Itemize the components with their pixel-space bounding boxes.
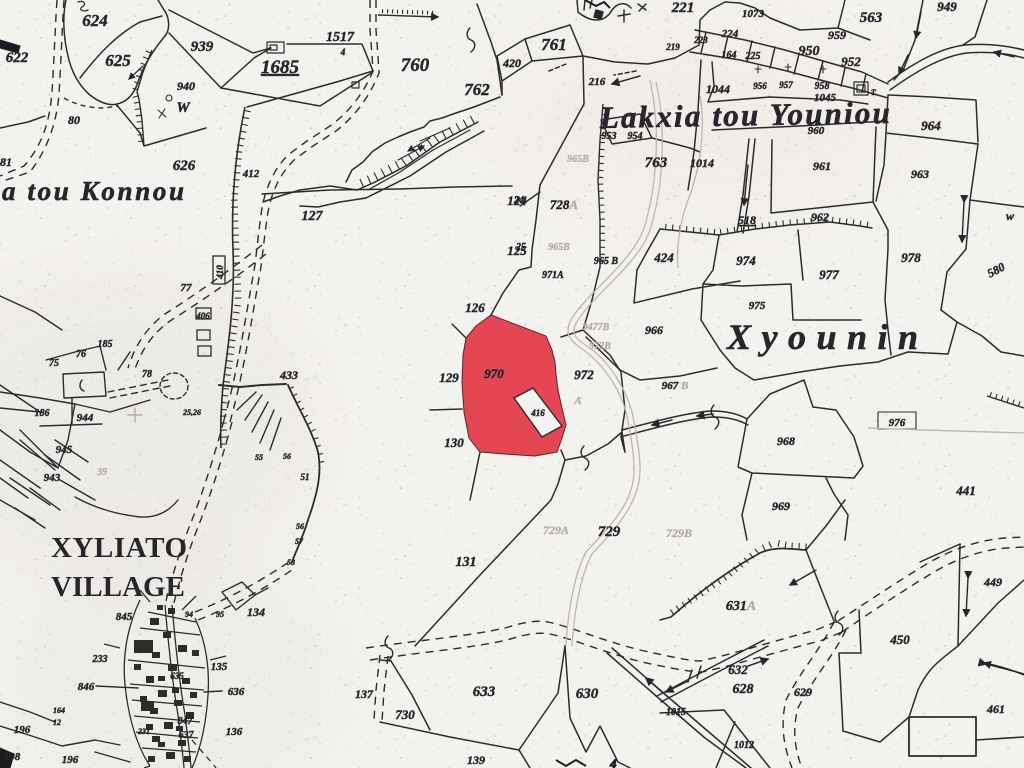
svg-text:1073: 1073 bbox=[742, 8, 765, 20]
svg-text:625: 625 bbox=[105, 51, 131, 70]
svg-text:622: 622 bbox=[6, 50, 29, 66]
svg-text:164: 164 bbox=[53, 706, 65, 715]
svg-text:965 B: 965 B bbox=[594, 256, 619, 267]
svg-text:728A: 728A bbox=[550, 197, 579, 212]
svg-text:964: 964 bbox=[921, 118, 941, 133]
svg-text:77: 77 bbox=[181, 282, 193, 294]
svg-text:127: 127 bbox=[302, 209, 324, 224]
svg-text:w: w bbox=[1006, 209, 1015, 223]
svg-text:a tou Konnou: a tou Konnou bbox=[2, 176, 184, 206]
svg-text:223: 223 bbox=[693, 35, 708, 45]
svg-text:944: 944 bbox=[77, 412, 94, 424]
svg-text:956: 956 bbox=[753, 81, 767, 91]
svg-text:224: 224 bbox=[721, 28, 739, 40]
svg-text:449: 449 bbox=[983, 575, 1002, 589]
svg-text:761: 761 bbox=[541, 35, 567, 54]
svg-text:406: 406 bbox=[195, 311, 210, 321]
svg-text:58: 58 bbox=[287, 558, 295, 567]
svg-text:134: 134 bbox=[247, 605, 265, 619]
svg-text:978: 978 bbox=[901, 250, 921, 265]
svg-text:636: 636 bbox=[228, 686, 245, 698]
svg-text:221: 221 bbox=[671, 0, 695, 16]
svg-text:971A: 971A bbox=[542, 270, 564, 281]
svg-text:410: 410 bbox=[215, 265, 225, 280]
svg-text:424: 424 bbox=[653, 250, 674, 265]
svg-text:968: 968 bbox=[777, 434, 795, 448]
svg-text:129: 129 bbox=[439, 370, 459, 385]
svg-text:939: 939 bbox=[191, 39, 214, 55]
svg-text:137: 137 bbox=[355, 687, 374, 701]
svg-text:461: 461 bbox=[986, 702, 1005, 716]
svg-text:730: 730 bbox=[395, 707, 415, 722]
svg-text:25,26: 25,26 bbox=[182, 408, 201, 417]
svg-text:974: 974 bbox=[736, 253, 756, 268]
svg-text:196: 196 bbox=[62, 754, 79, 766]
svg-text:977: 977 bbox=[819, 267, 839, 282]
svg-text:960: 960 bbox=[808, 125, 825, 137]
svg-text:729: 729 bbox=[598, 524, 621, 540]
svg-text:76: 76 bbox=[76, 349, 86, 360]
svg-text:1012: 1012 bbox=[734, 740, 754, 751]
svg-text:4: 4 bbox=[340, 47, 346, 57]
svg-text:185: 185 bbox=[98, 339, 113, 350]
svg-text:1685: 1685 bbox=[261, 57, 300, 78]
svg-text:953: 953 bbox=[602, 131, 617, 142]
svg-text:VILLAGE: VILLAGE bbox=[51, 571, 185, 603]
svg-text:965B: 965B bbox=[567, 154, 589, 165]
svg-text:563: 563 bbox=[860, 10, 883, 26]
svg-text:441: 441 bbox=[955, 483, 976, 498]
svg-text:966: 966 bbox=[645, 323, 663, 337]
svg-text:233: 233 bbox=[92, 654, 108, 665]
svg-text:630: 630 bbox=[576, 686, 599, 702]
svg-text:XYLIATO: XYLIATO bbox=[51, 532, 187, 564]
svg-text:51: 51 bbox=[301, 472, 310, 482]
svg-text:416: 416 bbox=[530, 408, 545, 418]
svg-text:225: 225 bbox=[745, 51, 761, 62]
svg-text:W: W bbox=[176, 100, 191, 116]
svg-text:131: 131 bbox=[456, 555, 477, 570]
svg-text:635: 635 bbox=[170, 671, 184, 681]
svg-text:845: 845 bbox=[116, 611, 133, 623]
svg-text:624: 624 bbox=[82, 11, 108, 30]
svg-text:967 B: 967 B bbox=[662, 380, 689, 392]
svg-text:4: 4 bbox=[609, 756, 617, 768]
svg-text:9477B: 9477B bbox=[583, 322, 610, 333]
svg-text:847: 847 bbox=[178, 716, 194, 727]
svg-text:518: 518 bbox=[738, 213, 756, 227]
svg-text:729B: 729B bbox=[666, 526, 692, 540]
svg-text:433: 433 bbox=[279, 368, 298, 382]
svg-text:130: 130 bbox=[444, 435, 464, 450]
svg-text:763: 763 bbox=[645, 155, 668, 171]
svg-text:729A: 729A bbox=[543, 523, 569, 537]
svg-text:78: 78 bbox=[142, 369, 152, 380]
svg-text:633: 633 bbox=[473, 684, 496, 700]
svg-text:628: 628 bbox=[733, 682, 754, 697]
svg-text:136: 136 bbox=[226, 726, 243, 738]
svg-text:957: 957 bbox=[779, 80, 793, 90]
svg-text:1015: 1015 bbox=[666, 707, 686, 718]
svg-text:95: 95 bbox=[216, 610, 224, 619]
svg-text:75: 75 bbox=[49, 358, 59, 369]
svg-text:940: 940 bbox=[177, 79, 195, 93]
svg-text:231: 231 bbox=[137, 727, 150, 736]
svg-text:1044: 1044 bbox=[706, 82, 730, 96]
svg-text:55: 55 bbox=[255, 453, 263, 462]
svg-text:56: 56 bbox=[283, 452, 291, 461]
svg-text:T.: T. bbox=[871, 88, 877, 97]
svg-text:164: 164 bbox=[722, 50, 737, 61]
svg-text:846: 846 bbox=[78, 681, 95, 693]
svg-text:965B: 965B bbox=[548, 242, 570, 253]
svg-text:762: 762 bbox=[464, 80, 490, 99]
svg-text:962: 962 bbox=[811, 210, 829, 224]
svg-text:943: 943 bbox=[44, 472, 61, 484]
svg-text:94: 94 bbox=[185, 610, 193, 619]
svg-text:198: 198 bbox=[4, 751, 21, 763]
svg-text:126: 126 bbox=[465, 300, 485, 315]
svg-text:24: 24 bbox=[513, 195, 524, 206]
svg-text:959: 959 bbox=[828, 28, 846, 42]
svg-text:961: 961 bbox=[813, 159, 831, 173]
svg-text:972B: 972B bbox=[589, 341, 611, 352]
svg-text:216: 216 bbox=[588, 76, 606, 88]
svg-text:1517: 1517 bbox=[326, 30, 355, 45]
svg-text:1014: 1014 bbox=[690, 156, 714, 170]
svg-text:952: 952 bbox=[841, 54, 861, 69]
svg-text:954: 954 bbox=[628, 131, 643, 142]
svg-text:450: 450 bbox=[889, 632, 910, 647]
svg-text:12: 12 bbox=[53, 718, 61, 727]
svg-text:631A: 631A bbox=[726, 599, 756, 614]
svg-text:632: 632 bbox=[728, 662, 748, 677]
svg-text:969: 969 bbox=[772, 499, 790, 513]
svg-text:Lakxia tou Youniou: Lakxia tou Youniou bbox=[599, 95, 891, 135]
svg-text:949: 949 bbox=[937, 0, 957, 14]
svg-text:970: 970 bbox=[484, 366, 504, 381]
svg-text:139: 139 bbox=[467, 753, 485, 767]
svg-text:976: 976 bbox=[889, 417, 906, 429]
svg-text:1045: 1045 bbox=[814, 92, 837, 104]
svg-text:186: 186 bbox=[35, 408, 50, 419]
svg-text:412: 412 bbox=[242, 168, 260, 180]
svg-text:80: 80 bbox=[68, 113, 80, 127]
svg-text:958: 958 bbox=[815, 81, 830, 92]
svg-text:637: 637 bbox=[179, 730, 195, 741]
svg-text:626: 626 bbox=[173, 158, 196, 174]
svg-text:56: 56 bbox=[296, 522, 304, 531]
svg-text:25: 25 bbox=[515, 242, 526, 253]
svg-text:629: 629 bbox=[794, 685, 812, 699]
svg-text:760: 760 bbox=[401, 55, 430, 76]
svg-text:420: 420 bbox=[502, 56, 521, 70]
svg-text:950: 950 bbox=[799, 44, 820, 59]
svg-text:975: 975 bbox=[749, 300, 766, 312]
svg-text:A: A bbox=[573, 395, 581, 407]
svg-text:963: 963 bbox=[911, 167, 929, 181]
svg-text:135: 135 bbox=[211, 661, 228, 673]
svg-text:972: 972 bbox=[574, 367, 594, 382]
svg-text:945: 945 bbox=[56, 444, 73, 456]
svg-text:196: 196 bbox=[14, 724, 31, 736]
svg-text:81: 81 bbox=[0, 155, 12, 169]
svg-text:39: 39 bbox=[96, 467, 107, 478]
svg-text:57: 57 bbox=[295, 537, 304, 546]
svg-text:219: 219 bbox=[665, 42, 680, 52]
